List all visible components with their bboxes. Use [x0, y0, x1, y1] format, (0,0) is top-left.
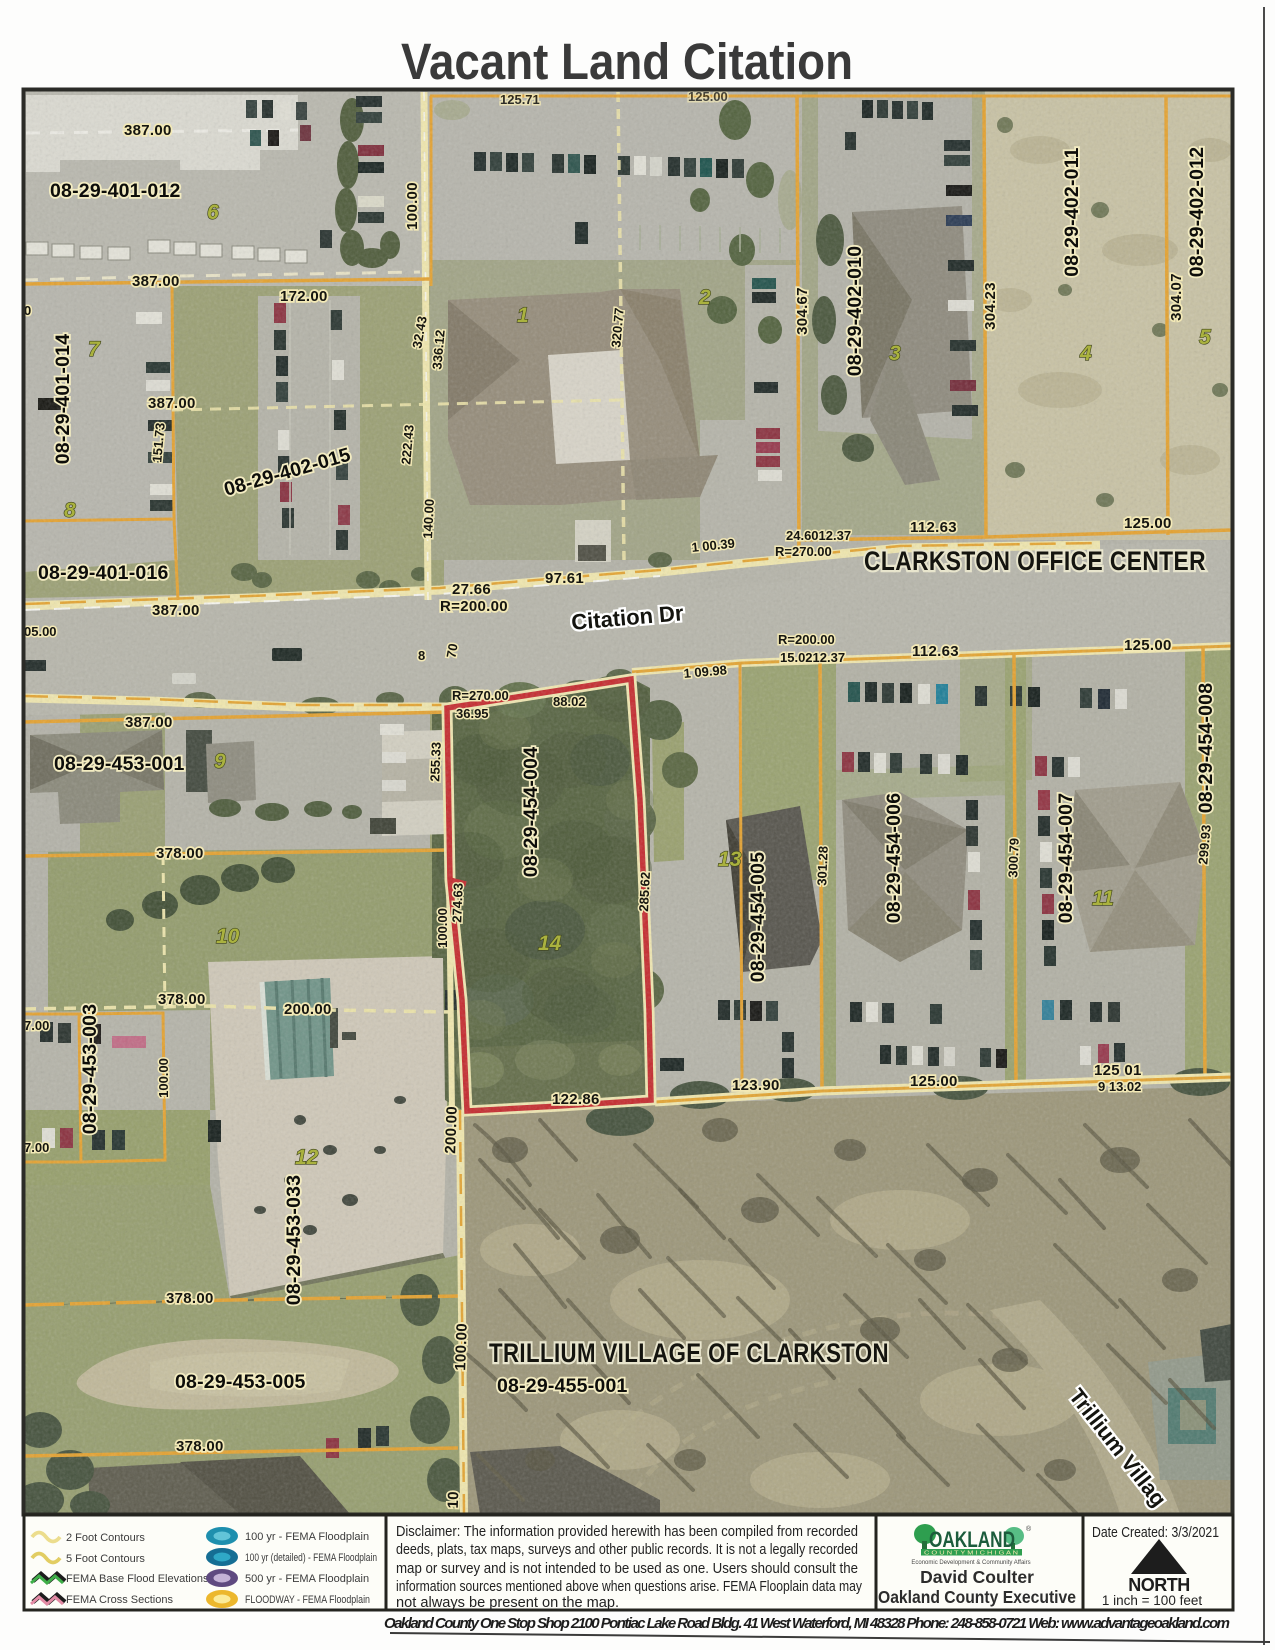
- svg-text:100 yr - FEMA Floodplain: 100 yr - FEMA Floodplain: [245, 1531, 369, 1543]
- svg-text:14: 14: [538, 932, 562, 955]
- svg-text:378.00: 378.00: [158, 991, 206, 1008]
- svg-text:100.00: 100.00: [404, 182, 421, 230]
- svg-text:7: 7: [88, 338, 101, 361]
- svg-text:08-29-454-005: 08-29-454-005: [747, 852, 769, 983]
- svg-text:FEMA Base Flood Elevations: FEMA Base Flood Elevations: [66, 1573, 209, 1585]
- svg-text:TRILLIUM VILLAGE OF CLARKSTON: TRILLIUM VILLAGE OF CLARKSTON: [489, 1338, 889, 1368]
- svg-text:100.00: 100.00: [452, 1323, 471, 1371]
- svg-text:deeds, plats, tax maps, survey: deeds, plats, tax maps, surveys and othe…: [396, 1542, 858, 1558]
- svg-text:08-29-455-001: 08-29-455-001: [497, 1375, 628, 1397]
- svg-text:125.00: 125.00: [910, 1073, 958, 1090]
- svg-text:R=270.00: R=270.00: [452, 688, 509, 703]
- svg-text:FEMA Cross Sections: FEMA Cross Sections: [66, 1594, 173, 1606]
- svg-text:08-29-402-011: 08-29-402-011: [1061, 147, 1083, 276]
- svg-text:304.07: 304.07: [1168, 273, 1185, 321]
- svg-text:08-29-454-006: 08-29-454-006: [883, 793, 905, 924]
- svg-text:200.00: 200.00: [284, 1001, 332, 1018]
- svg-text:Date Created: 3/3/2021: Date Created: 3/3/2021: [1092, 1525, 1219, 1541]
- svg-text:Economic Development & Communi: Economic Development & Community Affairs: [911, 1560, 1030, 1566]
- svg-text:08-29-453-003: 08-29-453-003: [79, 1004, 101, 1135]
- svg-text:13: 13: [718, 848, 742, 871]
- svg-text:304.23: 304.23: [982, 282, 999, 330]
- svg-text:172.00: 172.00: [280, 288, 328, 305]
- svg-text:7.00: 7.00: [24, 1140, 49, 1155]
- svg-text:08-29-454-004: 08-29-454-004: [520, 747, 542, 878]
- svg-text:9 13.02: 9 13.02: [1098, 1079, 1141, 1094]
- svg-text:112.63: 112.63: [912, 643, 959, 660]
- svg-text:112.63: 112.63: [910, 519, 957, 536]
- svg-text:125.00: 125.00: [1124, 515, 1172, 532]
- svg-text:8: 8: [418, 648, 425, 663]
- svg-text:387.00: 387.00: [124, 122, 172, 139]
- svg-text:12: 12: [295, 1146, 319, 1169]
- svg-text:CLARKSTON OFFICE CENTER: CLARKSTON OFFICE CENTER: [864, 546, 1206, 576]
- svg-text:08-29-401-016: 08-29-401-016: [38, 562, 169, 584]
- svg-text:6: 6: [207, 201, 219, 224]
- svg-text:C O U N T Y M I C H I G A N: C O U N T Y M I C H I G A N: [924, 1551, 1018, 1557]
- svg-text:®: ®: [1026, 1525, 1032, 1533]
- svg-text:2: 2: [698, 286, 711, 309]
- svg-text:125.00: 125.00: [1124, 637, 1172, 654]
- svg-text:300.79: 300.79: [1005, 838, 1021, 878]
- svg-text:08-29-453-001: 08-29-453-001: [54, 753, 185, 775]
- svg-text:R=200.00: R=200.00: [440, 598, 508, 615]
- svg-text:10: 10: [216, 925, 240, 948]
- svg-text:R=200.00: R=200.00: [778, 632, 835, 647]
- svg-text:387.00: 387.00: [125, 714, 173, 731]
- svg-text:88.02: 88.02: [553, 694, 586, 709]
- svg-text:3: 3: [889, 342, 901, 365]
- svg-text:Disclaimer: The information: Disclaimer: The information provided her…: [396, 1524, 858, 1540]
- svg-text:285.62: 285.62: [636, 872, 653, 912]
- svg-text:5 Foot Contours: 5 Foot Contours: [66, 1553, 145, 1565]
- svg-text:125.71: 125.71: [500, 92, 540, 107]
- svg-text:97.61: 97.61: [545, 570, 584, 587]
- svg-text:NORTH: NORTH: [1128, 1575, 1190, 1595]
- svg-text:Oakland County Executive: Oakland County Executive: [878, 1587, 1076, 1607]
- svg-text:387.00: 387.00: [152, 602, 200, 619]
- svg-text:Vacant Land Citation: Vacant Land Citation: [401, 33, 853, 90]
- svg-text:08-29-453-005: 08-29-453-005: [175, 1371, 306, 1393]
- svg-text:08-29-454-008: 08-29-454-008: [1195, 683, 1217, 814]
- svg-text:387.00: 387.00: [132, 273, 180, 290]
- svg-text:24.6012.37: 24.6012.37: [786, 528, 851, 543]
- svg-text:08-29-401-014: 08-29-401-014: [52, 334, 74, 465]
- svg-text:1: 1: [517, 304, 529, 327]
- svg-text:100.00: 100.00: [435, 908, 450, 948]
- svg-text:FLOODWAY - FEMA Floodplain: FLOODWAY - FEMA Floodplain: [245, 1594, 370, 1606]
- svg-text:140.00: 140.00: [420, 499, 437, 539]
- svg-text:70: 70: [443, 642, 460, 659]
- svg-text:08-29-453-033: 08-29-453-033: [283, 1175, 305, 1306]
- svg-text:304.67: 304.67: [794, 287, 811, 335]
- svg-text:27.66: 27.66: [452, 581, 491, 598]
- svg-text:08-29-454-007: 08-29-454-007: [1055, 793, 1077, 924]
- svg-text:1 inch = 100 feet: 1 inch = 100 feet: [1102, 1593, 1202, 1608]
- svg-text:7.00: 7.00: [24, 1018, 49, 1033]
- svg-text:OAKLAND: OAKLAND: [929, 1527, 1015, 1552]
- svg-text:274.63: 274.63: [449, 883, 465, 923]
- svg-text:4: 4: [1079, 342, 1092, 365]
- svg-text:not always be present on the m: not always be present on the map.: [396, 1595, 619, 1611]
- svg-text:08-29-402-010: 08-29-402-010: [844, 246, 866, 377]
- svg-text:378.00: 378.00: [176, 1438, 224, 1455]
- svg-text:36.95: 36.95: [456, 706, 489, 721]
- svg-text:5: 5: [1199, 326, 1211, 349]
- svg-text:10: 10: [445, 1491, 463, 1509]
- svg-text:122.86: 122.86: [552, 1091, 600, 1108]
- svg-text:8: 8: [64, 499, 76, 522]
- svg-text:08-29-402-012: 08-29-402-012: [1186, 147, 1208, 278]
- svg-text:9: 9: [214, 750, 226, 773]
- svg-text:125 01: 125 01: [1094, 1062, 1142, 1079]
- svg-text:05.00: 05.00: [24, 624, 57, 639]
- svg-text:100.00: 100.00: [156, 1058, 171, 1098]
- svg-text:255.33: 255.33: [427, 742, 443, 782]
- svg-text:200.00: 200.00: [442, 1106, 461, 1154]
- svg-text:11: 11: [1092, 887, 1114, 910]
- svg-text:Oakland County One Stop Shop: Oakland County One Stop Shop 2100 Pontia…: [384, 1615, 1230, 1632]
- svg-text:301.28: 301.28: [814, 846, 830, 886]
- svg-text:08-29-401-012: 08-29-401-012: [50, 180, 181, 202]
- svg-text:378.00: 378.00: [166, 1290, 214, 1307]
- svg-text:500 yr - FEMA Floodplain: 500 yr - FEMA Floodplain: [245, 1573, 369, 1585]
- svg-text:387.00: 387.00: [148, 395, 196, 412]
- svg-text:15.0212.37: 15.0212.37: [780, 650, 845, 665]
- svg-text:information sources mentioned: information sources mentioned above when…: [396, 1579, 863, 1595]
- svg-text:2 Foot Contours: 2 Foot Contours: [66, 1532, 145, 1544]
- svg-text:map or survey and is not: map or survey and is not intended to be …: [396, 1561, 858, 1577]
- svg-text:100 yr (detailed) - FEMA Flood: 100 yr (detailed) - FEMA Floodplain: [245, 1552, 377, 1564]
- svg-text:David Coulter: David Coulter: [920, 1567, 1034, 1587]
- svg-text:R=270.00: R=270.00: [775, 544, 832, 559]
- svg-text:123.90: 123.90: [732, 1077, 780, 1094]
- svg-text:378.00: 378.00: [156, 845, 204, 862]
